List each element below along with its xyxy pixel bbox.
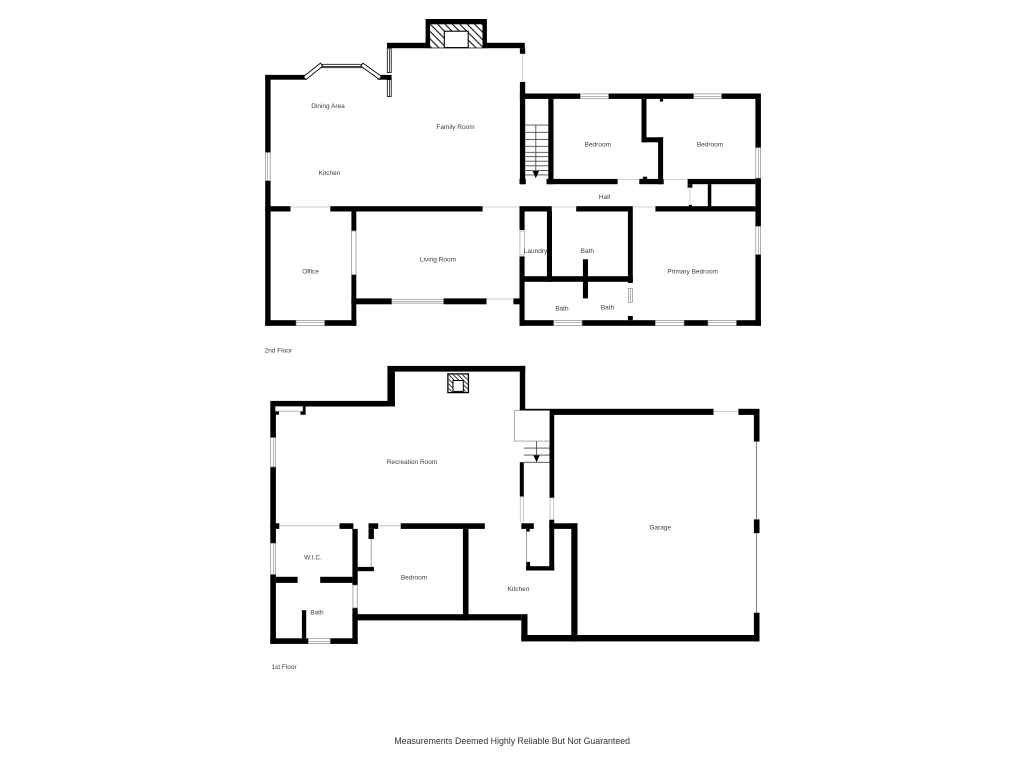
svg-text:Bath: Bath (581, 248, 595, 255)
svg-text:Bath: Bath (310, 609, 324, 616)
svg-text:Bedroom: Bedroom (585, 142, 611, 149)
svg-text:Bedroom: Bedroom (697, 142, 723, 149)
svg-text:Measurements Deemed Highly Rel: Measurements Deemed Highly Reliable But … (394, 736, 630, 746)
svg-text:Garage: Garage (649, 524, 671, 531)
svg-text:2nd Floor: 2nd Floor (265, 348, 293, 355)
svg-text:Primary Bedroom: Primary Bedroom (667, 269, 718, 276)
svg-text:Laundry: Laundry (524, 248, 548, 255)
svg-text:Dining Area: Dining Area (311, 103, 345, 110)
svg-text:Bedroom: Bedroom (401, 575, 427, 582)
svg-text:Recreation Room: Recreation Room (387, 459, 438, 466)
svg-text:1st Floor: 1st Floor (271, 664, 297, 671)
svg-text:Bath: Bath (555, 305, 569, 312)
svg-text:Living Room: Living Room (420, 257, 456, 264)
svg-text:W.I.C.: W.I.C. (304, 555, 322, 562)
svg-text:Kitchen: Kitchen (319, 170, 341, 177)
svg-text:Family Room: Family Room (436, 124, 474, 131)
svg-text:Office: Office (302, 269, 319, 276)
svg-text:Kitchen: Kitchen (508, 586, 530, 593)
svg-text:Hall: Hall (599, 194, 611, 201)
svg-text:Bath: Bath (601, 304, 615, 311)
